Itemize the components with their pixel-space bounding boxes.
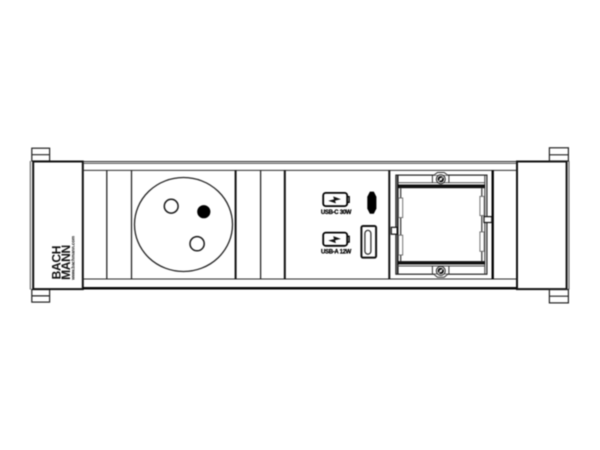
svg-text:USB-A 12W: USB-A 12W xyxy=(321,250,352,256)
svg-text:USB-C 30W: USB-C 30W xyxy=(321,210,352,216)
svg-text:www.bachmann.com: www.bachmann.com xyxy=(71,236,76,281)
